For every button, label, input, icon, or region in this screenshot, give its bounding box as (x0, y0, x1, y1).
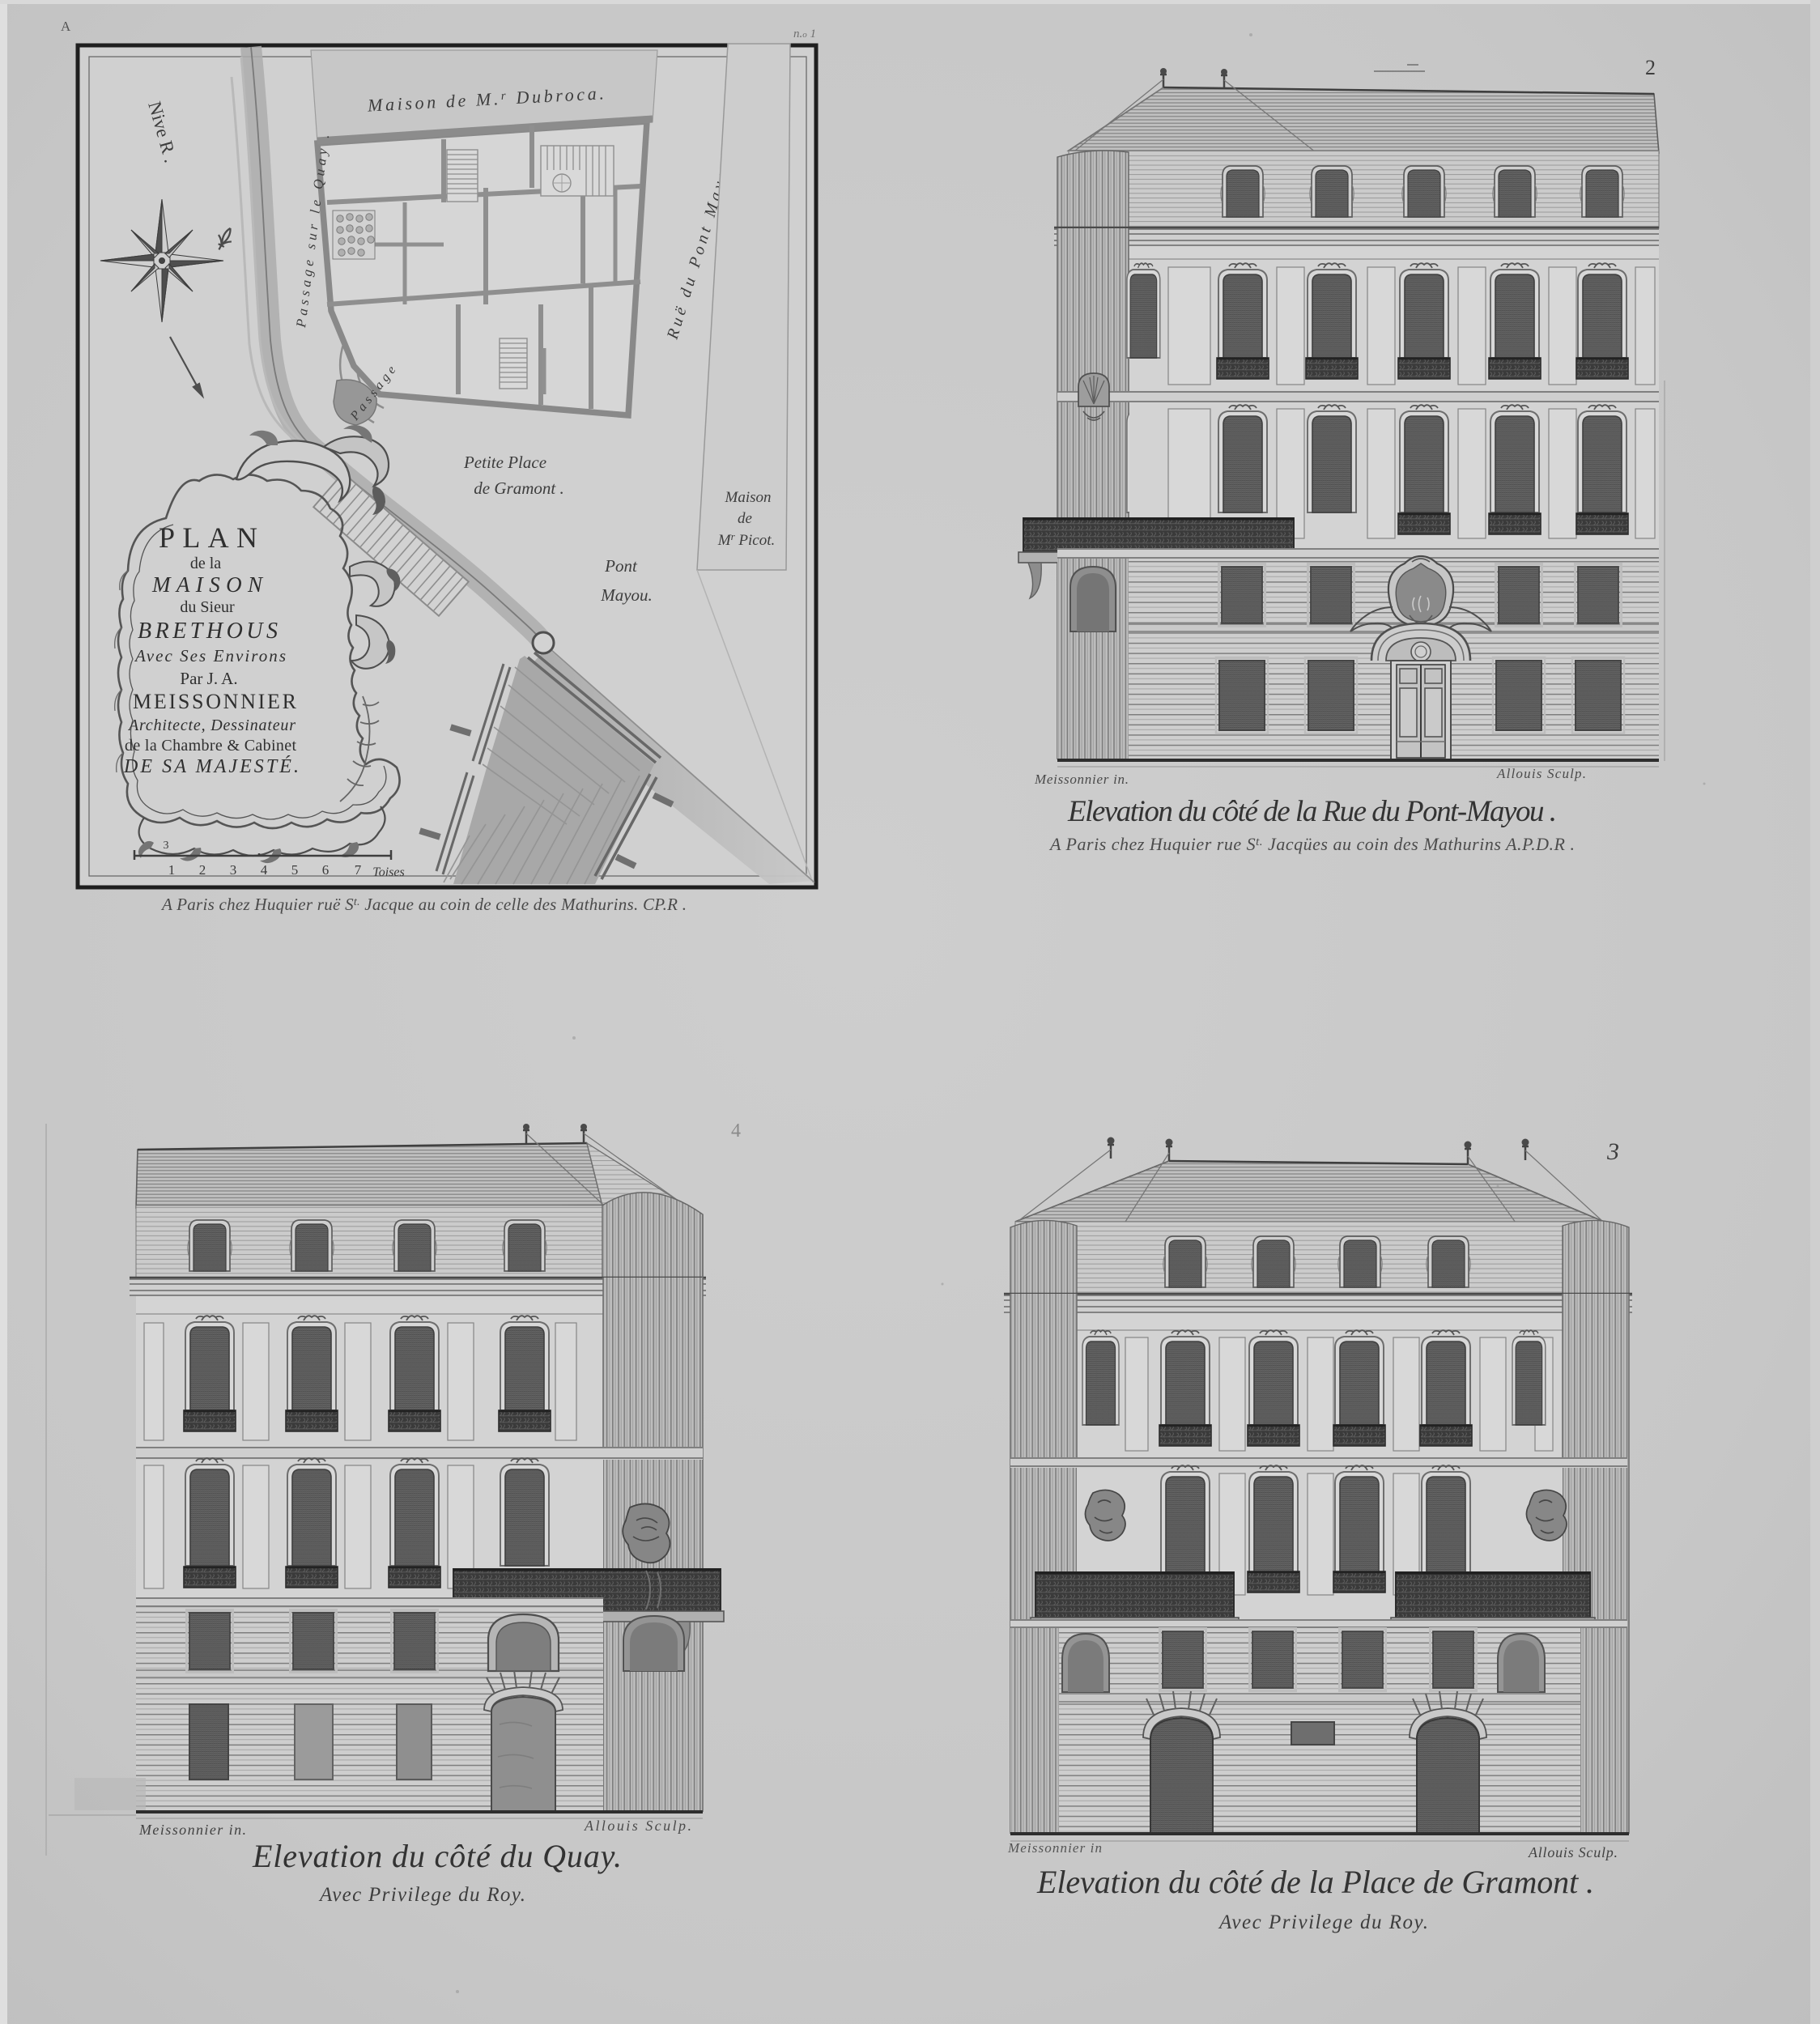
svg-text:4: 4 (261, 862, 268, 878)
svg-text:5: 5 (291, 862, 299, 878)
svg-text:de: de (738, 510, 752, 527)
svg-text:de la: de la (190, 555, 221, 572)
svg-text:2: 2 (199, 862, 206, 878)
svg-text:Allouis Sculp.: Allouis Sculp. (1496, 766, 1586, 781)
svg-text:Maison: Maison (725, 489, 772, 506)
svg-text:Architecte, Dessinateur: Architecte, Dessinateur (127, 716, 296, 734)
svg-text:Meissonnier in: Meissonnier in (1007, 1840, 1102, 1856)
svg-text:BRETHOUS: BRETHOUS (138, 619, 280, 644)
svg-text:2: 2 (1645, 56, 1656, 79)
svg-text:Elevation du côté de la Rue du: Elevation du côté de la Rue du Pont-Mayo… (1067, 795, 1557, 828)
svg-text:du Sieur: du Sieur (180, 598, 235, 616)
svg-text:Pont: Pont (604, 556, 638, 576)
svg-text:Avec Privilege du Roy.: Avec Privilege du Roy. (1218, 1911, 1428, 1933)
svg-text:A Paris chez Huquier rue St. J: A Paris chez Huquier rue St. Jacqües au … (1048, 834, 1575, 854)
svg-text:DE SA MAJESTÉ.: DE SA MAJESTÉ. (123, 756, 300, 777)
svg-text:de Gramont .: de Gramont . (474, 478, 563, 498)
svg-text:de la Chambre & Cabinet: de la Chambre & Cabinet (125, 737, 296, 755)
svg-text:Mr Picot.: Mr Picot. (717, 530, 776, 549)
svg-text:3: 3 (164, 840, 169, 852)
svg-text:7: 7 (355, 862, 362, 878)
svg-text:Meissonnier in.: Meissonnier in. (138, 1822, 246, 1838)
svg-text:Par J. A.: Par J. A. (180, 669, 237, 688)
svg-text:Allouis Sculp.: Allouis Sculp. (1528, 1844, 1618, 1860)
svg-text:A: A (61, 19, 71, 34)
svg-text:Avec Privilege du Roy.: Avec Privilege du Roy. (318, 1884, 525, 1906)
svg-text:n.o 1: n.o 1 (793, 28, 816, 40)
svg-text:Elevation du côté de la Place: Elevation du côté de la Place de Gramont… (1036, 1864, 1594, 1900)
svg-text:Elevation du côté du Quay.: Elevation du côté du Quay. (252, 1838, 622, 1874)
svg-text:Toises: Toises (372, 865, 404, 879)
svg-text:4: 4 (731, 1120, 741, 1142)
svg-text:PLAN: PLAN (159, 521, 266, 554)
svg-text:3: 3 (1606, 1138, 1619, 1165)
svg-text:A Paris chez Huquier ruë St. J: A Paris chez Huquier ruë St. Jacque au c… (160, 895, 687, 914)
svg-text:1: 1 (168, 862, 176, 878)
svg-text:Meissonnier in.: Meissonnier in. (1034, 772, 1129, 787)
svg-text:3: 3 (230, 862, 237, 878)
svg-text:6: 6 (322, 862, 330, 878)
svg-text:Petite Place: Petite Place (463, 453, 546, 472)
svg-text:Mayou.: Mayou. (600, 585, 653, 605)
svg-text:Avec Ses Environs: Avec Ses Environs (134, 646, 286, 665)
svg-text:MEISSONNIER: MEISSONNIER (133, 690, 298, 713)
svg-text:MAISON: MAISON (151, 572, 266, 597)
